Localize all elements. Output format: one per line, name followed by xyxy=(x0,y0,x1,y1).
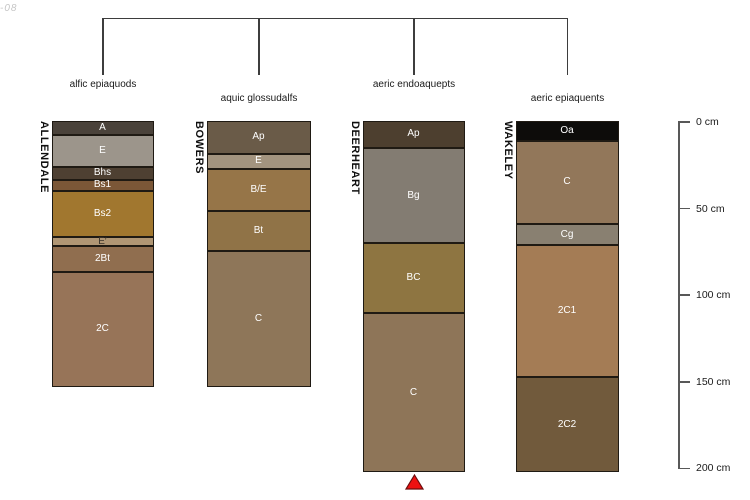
horizon-label: C xyxy=(517,177,618,187)
horizon-label: Oa xyxy=(517,126,618,136)
bracket-stem xyxy=(258,18,259,75)
bracket-horizontal-line xyxy=(103,18,568,19)
horizon-label: Cg xyxy=(517,230,618,240)
series-name-label: DEERHEART xyxy=(347,121,361,195)
horizon-label: Ap xyxy=(364,129,464,139)
soil-column: ApBgBCC xyxy=(363,121,465,473)
depth-tick-label: 100 cm xyxy=(696,289,730,301)
horizon-band: C xyxy=(208,250,310,386)
horizon-label: E xyxy=(208,156,310,166)
horizon-label: Bs2 xyxy=(53,209,153,219)
depth-tick xyxy=(678,208,690,210)
horizon-band: 2Bt xyxy=(53,245,153,271)
bracket-stem xyxy=(567,18,568,75)
series-name-label: ALLENDALE xyxy=(36,121,50,193)
horizon-band: BC xyxy=(364,242,464,312)
depth-tick xyxy=(678,468,690,470)
classification-label: aeric endoaquepts xyxy=(373,79,455,90)
horizon-label: Ap xyxy=(208,132,310,142)
soil-column: OaCCg2C12C2 xyxy=(516,121,619,473)
depth-tick xyxy=(678,381,690,383)
depth-tick-label: 150 cm xyxy=(696,376,730,388)
horizon-band: Bhs xyxy=(53,166,153,179)
soil-profile-figure: -08 alfic epiaquodsaquic glossudalfsaeri… xyxy=(0,0,750,500)
horizon-band: B/E xyxy=(208,168,310,210)
horizon-band: 2C1 xyxy=(517,244,618,376)
bracket-stem xyxy=(102,18,103,75)
marker-triangle-icon xyxy=(405,474,424,490)
horizon-label: A xyxy=(53,123,153,133)
depth-tick xyxy=(678,121,690,123)
horizon-label: C xyxy=(208,314,310,324)
horizon-label: 2C xyxy=(53,324,153,334)
depth-tick-label: 0 cm xyxy=(696,116,719,128)
horizon-label: 2Bt xyxy=(53,254,153,264)
horizon-label: BC xyxy=(364,273,464,283)
classification-label: aeric epiaquents xyxy=(531,93,604,104)
horizon-band: 2C xyxy=(53,271,153,385)
horizon-band: Cg xyxy=(517,223,618,245)
horizon-band: Ap xyxy=(364,122,464,148)
series-name-label: WAKELEY xyxy=(500,121,514,180)
horizon-band: Bt xyxy=(208,210,310,250)
horizon-band: E′ xyxy=(53,236,153,246)
soil-column: ApEB/EBtC xyxy=(207,121,311,387)
classification-label: alfic epiaquods xyxy=(70,79,137,90)
soil-column: AEBhsBs1Bs2E′2Bt2C xyxy=(52,121,154,387)
page-number-fragment: -08 xyxy=(0,3,17,14)
horizon-label: Bg xyxy=(364,191,464,201)
horizon-band: Ap xyxy=(208,122,310,153)
horizon-band: 2C2 xyxy=(517,376,618,471)
depth-tick-label: 50 cm xyxy=(696,203,725,215)
horizon-band: Bs1 xyxy=(53,179,153,190)
horizon-band: E xyxy=(53,134,153,165)
horizon-label: Bs1 xyxy=(53,180,153,190)
horizon-band: A xyxy=(53,122,153,135)
horizon-band: E xyxy=(208,153,310,169)
depth-tick xyxy=(678,294,690,296)
horizon-label: E xyxy=(53,146,153,156)
series-name-label: BOWERS xyxy=(191,121,205,174)
horizon-band: C xyxy=(517,140,618,223)
horizon-label: 2C2 xyxy=(517,420,618,430)
horizon-label: B/E xyxy=(208,185,310,195)
horizon-band: Bs2 xyxy=(53,190,153,236)
horizon-band: Oa xyxy=(517,122,618,140)
bracket-stem xyxy=(413,18,414,75)
horizon-label: 2C1 xyxy=(517,306,618,316)
horizon-band: C xyxy=(364,312,464,471)
horizon-label: Bhs xyxy=(53,168,153,178)
horizon-label: Bt xyxy=(208,226,310,236)
depth-tick-label: 200 cm xyxy=(696,462,730,474)
classification-label: aquic glossudalfs xyxy=(221,93,298,104)
horizon-band: Bg xyxy=(364,147,464,241)
horizon-label: C xyxy=(364,388,464,398)
